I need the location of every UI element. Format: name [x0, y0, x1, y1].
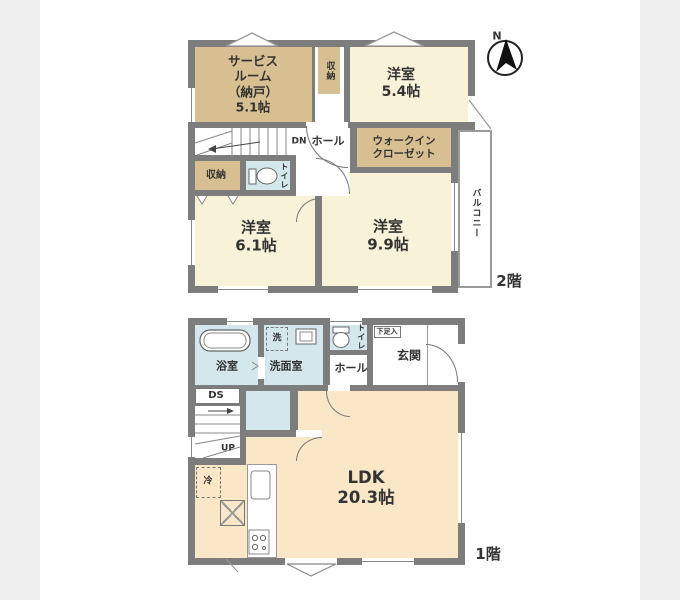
refrigerator-label: 冷 — [203, 477, 212, 488]
duct-space-label: DS — [208, 390, 224, 402]
room-label-service-room: サービス ルーム （納戸） 5.1帖 — [228, 54, 278, 115]
room-bathroom — [195, 325, 258, 385]
background-strip-right — [640, 0, 680, 600]
room-label-bedroom-9-9: 洋室 9.9帖 — [367, 218, 409, 255]
balcony-label: バルコニー — [470, 188, 481, 238]
room-label-walk-in-closet: ウォークイン クローゼット — [373, 135, 436, 161]
laundry-label: 洗 — [272, 334, 281, 345]
room-label-bedroom-6-1: 洋室 6.1帖 — [235, 219, 277, 256]
room-label-washroom: 洗面室 — [270, 359, 303, 372]
window — [188, 437, 195, 457]
room-label-entrance: 玄関 — [397, 349, 421, 364]
bay-window-icon — [287, 564, 336, 576]
window — [188, 88, 195, 122]
kitchen-counter — [247, 464, 277, 558]
room-label-bathroom: 浴室 — [216, 359, 238, 372]
bay-window-opening — [285, 558, 337, 565]
window — [188, 220, 195, 265]
shoe-cabinet-label: 下足入 — [377, 328, 398, 337]
cupboard-box — [220, 500, 245, 526]
window — [218, 286, 268, 293]
window — [451, 183, 458, 251]
hall-1f-label: ホール — [335, 361, 368, 374]
balcony-door-opening — [468, 96, 475, 122]
window — [362, 558, 414, 565]
first-floor-label: 1階 — [475, 545, 500, 563]
room-label-bedroom-5-4: 洋室 5.4帖 — [382, 67, 421, 101]
background-strip-left — [0, 0, 40, 600]
hall-2f-label: ホール — [312, 134, 345, 147]
compass-icon — [488, 39, 522, 75]
room-label-toilet-2f: トイレ — [279, 163, 289, 190]
room-label-closet-left: 収納 — [206, 170, 226, 182]
room-label-ldk: LDK 20.3帖 — [337, 468, 394, 508]
window — [458, 433, 465, 523]
entrance-door-opening — [458, 344, 465, 382]
window — [227, 318, 253, 325]
window — [358, 286, 432, 293]
room-washroom-lower — [246, 391, 290, 430]
door-opening — [296, 430, 322, 437]
compass-n-label: N — [492, 29, 501, 42]
room-label-closet-top: 収納 — [324, 61, 335, 81]
stairs-dn-label: DN — [291, 137, 306, 148]
room-label-toilet-1f: トイレ — [356, 324, 366, 351]
floor-plan-page: サービス ルーム （納戸） 5.1帖 収納 洋室 5.4帖 DN ホール ウォー… — [0, 0, 680, 600]
second-floor-label: 2階 — [496, 272, 521, 290]
bathroom-door-opening — [258, 357, 265, 379]
stairs-up-label: UP — [221, 444, 235, 455]
